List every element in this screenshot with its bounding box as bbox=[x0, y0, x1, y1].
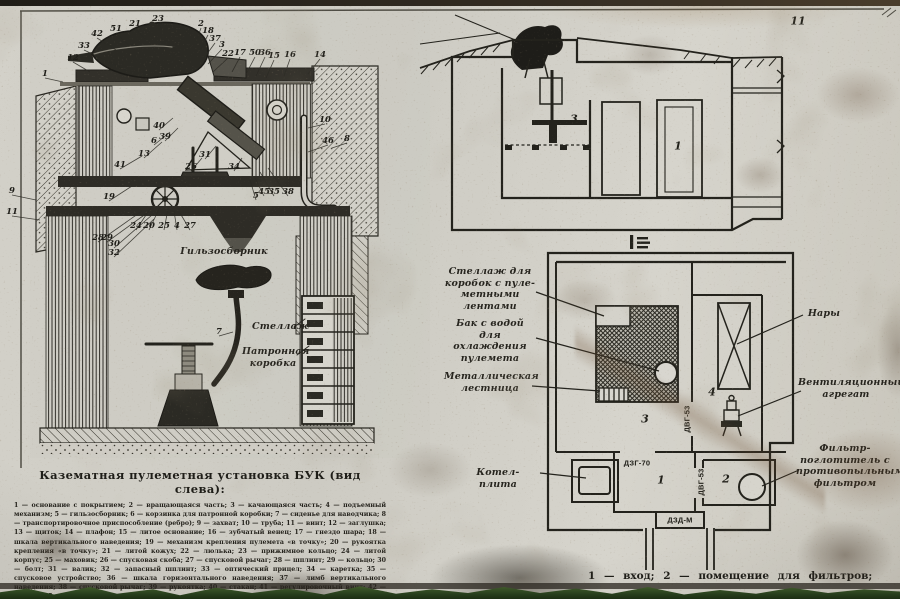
plate-top-edge bbox=[0, 0, 900, 6]
door-label-ДВГ-53: ДВГ-53 bbox=[697, 468, 706, 495]
callout-number-20: 20 bbox=[143, 221, 155, 231]
photo-of-information-board: Казематная пулеметная установка БУК (вид… bbox=[0, 0, 900, 599]
hand-label-9: Фильтр- поглотитель с противопыльным фил… bbox=[796, 443, 894, 489]
hand-label-5: Металлическая лестница bbox=[444, 371, 536, 394]
door-label-ДВГ-53: ДВГ-53 bbox=[683, 405, 692, 432]
callout-number-11: 11 bbox=[6, 207, 18, 217]
plan-caption: 1 — вход; 2 — помещение для фильтров; bbox=[588, 570, 888, 582]
callout-number-38: 38 bbox=[282, 187, 294, 197]
hand-label-7: Нары bbox=[804, 308, 844, 320]
callout-number-12: 12 bbox=[67, 53, 79, 63]
callout-number-14: 14 bbox=[314, 50, 326, 60]
callout-number-13: 13 bbox=[138, 149, 150, 159]
callout-number-23: 23 bbox=[152, 14, 164, 24]
callout-number-25: 25 bbox=[158, 221, 170, 231]
callout-number-16: 16 bbox=[284, 50, 296, 60]
hand-label-6: Котел-плита bbox=[458, 467, 538, 490]
room-number-3-4: 3 bbox=[570, 113, 578, 126]
drawing-text-layer: Казематная пулеметная установка БУК (вид… bbox=[0, 0, 900, 599]
callout-number-40: 40 bbox=[153, 121, 165, 131]
callout-number-22: 22 bbox=[222, 49, 234, 59]
callout-number-8: 8 bbox=[344, 134, 350, 144]
plate-bottom-edge bbox=[0, 583, 900, 589]
callout-number-26: 26 bbox=[185, 162, 197, 172]
callout-number-4: 4 bbox=[174, 221, 180, 231]
callout-number-42: 42 bbox=[91, 29, 103, 39]
hand-label-0: Гильзосборник bbox=[174, 246, 274, 258]
callout-number-7: 7 bbox=[216, 327, 222, 337]
room-number-4-1: 4 bbox=[708, 386, 716, 399]
hand-label-1: Стеллаж bbox=[252, 321, 302, 333]
callout-number-27: 27 bbox=[184, 221, 196, 231]
room-number-11-6: 11 bbox=[790, 15, 805, 28]
callout-number-51: 51 bbox=[110, 24, 122, 34]
callout-number-6: 6 bbox=[151, 136, 157, 146]
callout-number-17: 17 bbox=[234, 48, 246, 58]
callout-number-46: 46 bbox=[322, 136, 334, 146]
room-number-3-0: 3 bbox=[641, 413, 649, 426]
hand-label-8: Вентиляционный агрегат bbox=[798, 377, 894, 400]
room-number-1-2: 1 bbox=[657, 474, 665, 487]
callout-number-41: 41 bbox=[114, 160, 126, 170]
hand-label-2: Патронная коробка bbox=[242, 346, 304, 369]
callout-number-15: 15 bbox=[268, 51, 280, 61]
callout-number-24: 24 bbox=[130, 221, 142, 231]
door-label-ДЗД-М: ДЗД-М bbox=[667, 516, 692, 525]
callout-number-31: 31 bbox=[199, 150, 211, 160]
legend-title: Казематная пулеметная установка БУК (вид… bbox=[14, 468, 386, 496]
callout-number-34: 34 bbox=[228, 162, 240, 172]
door-label-ДЗГ-70: ДЗГ-70 bbox=[624, 459, 650, 468]
callout-number-33: 33 bbox=[78, 41, 90, 51]
callout-number-19: 19 bbox=[103, 192, 115, 202]
callout-number-39: 39 bbox=[159, 132, 171, 142]
room-number-1-5: 1 bbox=[674, 140, 682, 153]
hand-label-3: Стеллаж для коробок с пуле- метными лент… bbox=[444, 266, 536, 312]
hand-label-4: Бак с водой для охлаждения пулемета bbox=[444, 318, 536, 364]
callout-number-9: 9 bbox=[9, 186, 15, 196]
legend-block: Казематная пулеметная установка БУК (вид… bbox=[14, 468, 386, 599]
room-number-2-3: 2 bbox=[722, 473, 730, 486]
callout-number-1: 1 bbox=[42, 69, 48, 79]
callout-number-32: 32 bbox=[108, 248, 120, 258]
callout-number-35: 35 bbox=[268, 187, 280, 197]
callout-number-21: 21 bbox=[129, 19, 141, 29]
callout-number-10: 10 bbox=[319, 115, 331, 125]
